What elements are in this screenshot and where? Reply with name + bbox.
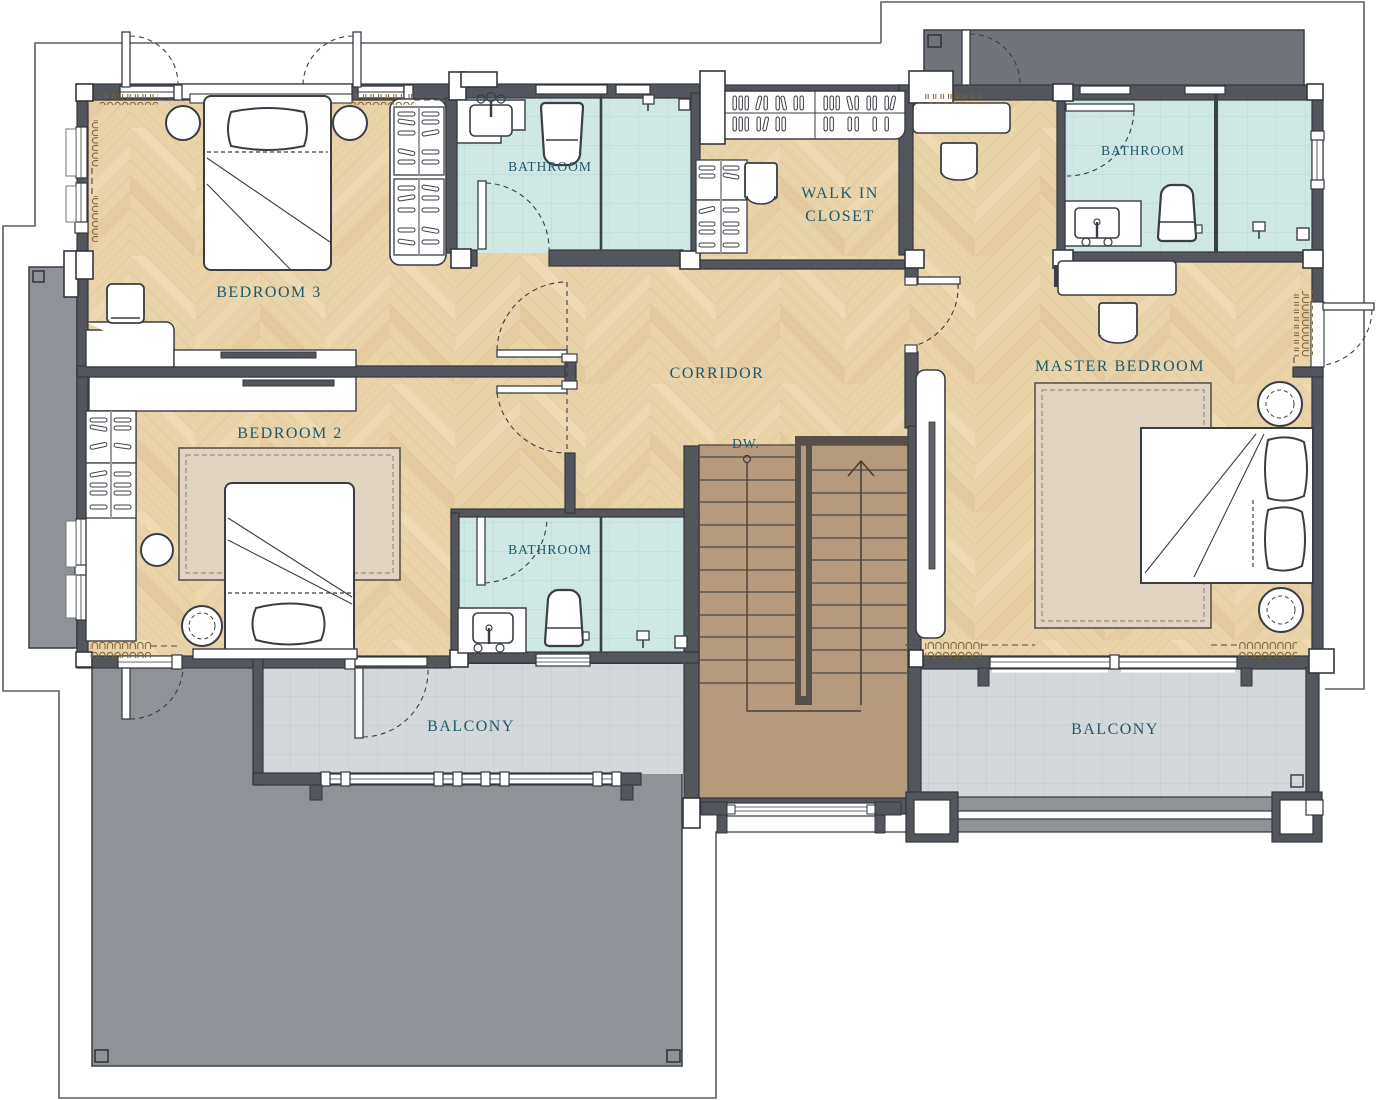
svg-text:DW.: DW. <box>732 436 760 451</box>
svg-text:BATHROOM: BATHROOM <box>1101 143 1185 158</box>
svg-text:CORRIDOR: CORRIDOR <box>670 365 765 382</box>
svg-text:BEDROOM 3: BEDROOM 3 <box>216 284 322 301</box>
svg-text:BEDROOM 2: BEDROOM 2 <box>237 425 343 442</box>
svg-text:BATHROOM: BATHROOM <box>508 159 592 174</box>
svg-text:BALCONY: BALCONY <box>1071 721 1159 738</box>
svg-text:BALCONY: BALCONY <box>427 718 515 735</box>
svg-text:BATHROOM: BATHROOM <box>508 542 592 557</box>
svg-text:CLOSET: CLOSET <box>805 208 874 225</box>
svg-text:MASTER BEDROOM: MASTER BEDROOM <box>1035 358 1205 375</box>
svg-text:WALK IN: WALK IN <box>801 185 879 202</box>
